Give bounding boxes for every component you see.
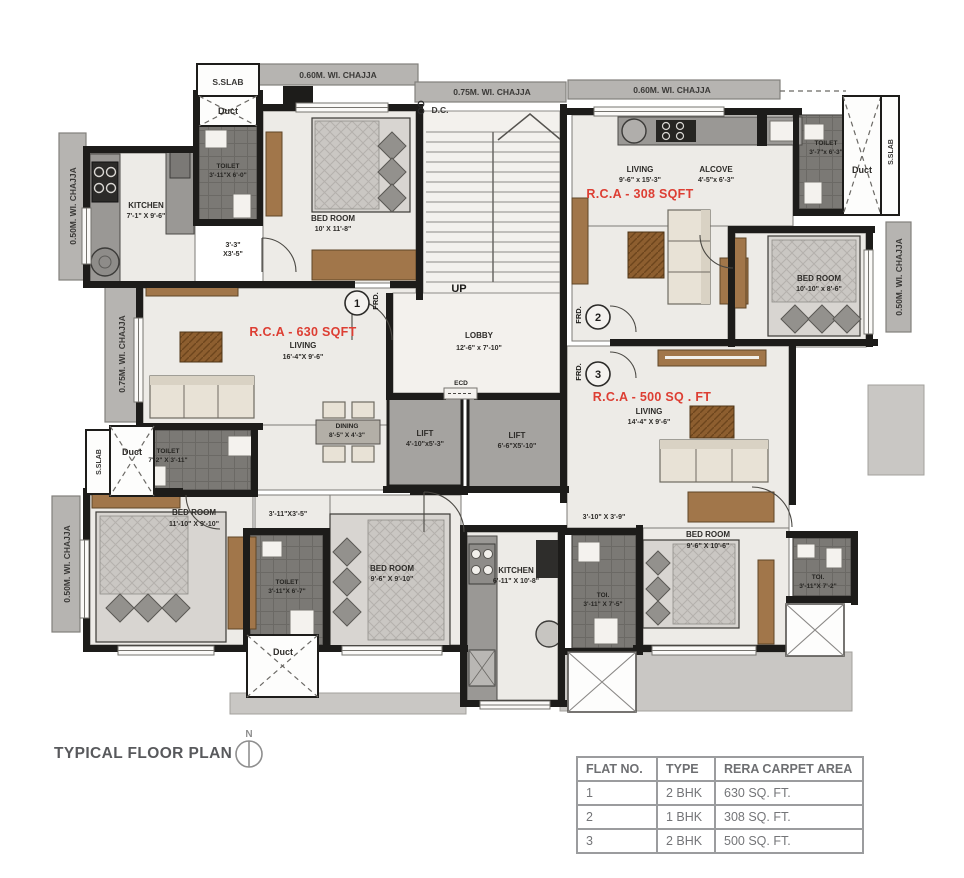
washbasin — [804, 124, 824, 140]
chajja-label-right: 0.50M. WI. CHAJJA — [894, 238, 904, 315]
dining-chair — [352, 402, 374, 418]
living1-dims: 16'-4"X 9'-6" — [283, 354, 324, 361]
dining-chair — [323, 402, 345, 418]
frd2-label: FRD. — [574, 306, 583, 324]
table-header-row: FLAT NO. TYPE RERA CARPET AREA — [577, 757, 863, 781]
passage2-dims: 3'-11"X3'-5" — [269, 511, 307, 518]
toilet1-dims: 3'-11"X 6'-0" — [209, 172, 246, 179]
toilet3-name: TOILET — [276, 579, 299, 586]
north-symbol: N — [236, 729, 262, 767]
floor-plan-page: 0.60M. WI. CHAJJA 0.75M. WI. CHAJJA 0.60… — [0, 0, 964, 878]
cabinet — [572, 198, 588, 284]
lift2-dims: 6'-6"X5'-10" — [498, 443, 537, 450]
wardrobe — [266, 132, 282, 216]
alcove-dims: 4'-5"x 6'-3" — [698, 177, 734, 184]
wc — [804, 182, 822, 204]
washbasin — [205, 130, 227, 148]
chajja-label-left-top: 0.50M. WI. CHAJJA — [68, 167, 78, 244]
duct-label-right: Duct — [852, 165, 872, 175]
dining-chair — [352, 446, 374, 462]
living3-name: LIVING — [636, 407, 663, 416]
stove — [656, 120, 696, 142]
living2-dims: 9'-6" x 15'-3" — [619, 177, 661, 184]
frd1-label: FRD. — [371, 292, 380, 310]
frd3-number: 3 — [595, 369, 601, 381]
toi2-name: TOI. — [812, 574, 825, 581]
lobby-floor — [393, 293, 560, 393]
lift2-name: LIFT — [509, 431, 526, 440]
living1-name: LIVING — [290, 341, 317, 350]
bedroom1-name: BED ROOM — [311, 214, 355, 223]
bedroom3-name: BED ROOM — [370, 564, 414, 573]
toi2-dims: 3'-11"X 7'-2" — [799, 583, 836, 590]
wardrobe — [228, 537, 256, 629]
dresser — [312, 250, 416, 280]
cell-type: 2 BHK — [657, 781, 715, 805]
cell-type: 1 BHK — [657, 805, 715, 829]
living2-name: LIVING — [627, 165, 654, 174]
bedroom1-dims: 10' X 11'-8" — [315, 226, 352, 233]
duct-label-left: Duct — [122, 447, 142, 457]
lift1-dims: 4'-10"x5'-3" — [406, 441, 444, 448]
bedroom4-name: BED ROOM — [797, 274, 841, 283]
cabinet — [758, 560, 774, 644]
bedroom2-dims: 11'-10" X 9'-10" — [169, 521, 219, 528]
frd2-number: 2 — [595, 312, 601, 324]
frd3-label: FRD. — [574, 363, 583, 381]
lobby-dims: 12'-6" x 7'-10" — [456, 345, 502, 352]
table-row: 1 2 BHK 630 SQ. FT. — [577, 781, 863, 805]
north-letter: N — [245, 729, 252, 740]
sslab-label-right: S.SLAB — [888, 139, 895, 165]
cell-flat-no: 1 — [577, 781, 657, 805]
cylinder — [91, 248, 119, 276]
page-title: TYPICAL FLOOR PLAN — [54, 745, 232, 763]
toilet2-name: TOILET — [157, 448, 180, 455]
wc — [233, 194, 251, 218]
bedroom3-dims: 9'-6" X 9'-10" — [371, 576, 414, 583]
stove — [469, 544, 495, 584]
sslab-label-left: S.SLAB — [96, 449, 103, 475]
wc — [290, 610, 314, 638]
coffee-table — [180, 332, 222, 362]
table-row: 2 1 BHK 308 SQ. FT. — [577, 805, 863, 829]
cell-flat-no: 2 — [577, 805, 657, 829]
cell-area: 308 SQ. FT. — [715, 805, 863, 829]
wc — [594, 618, 618, 644]
toilet3-dims: 3'-11"X 6'-7" — [268, 588, 305, 595]
toilet1-name: TOILET — [217, 163, 240, 170]
dc-label: D.C. — [432, 105, 449, 115]
coffee-table — [628, 232, 664, 278]
toilet4-name: TOILET — [815, 140, 838, 147]
cylinder — [622, 119, 646, 143]
header-rera-area: RERA CARPET AREA — [715, 757, 863, 781]
flat1-rca: R.C.A - 630 SQFT — [249, 325, 356, 339]
table-row: 3 2 BHK 500 SQ. FT. — [577, 829, 863, 853]
frd1-number: 1 — [354, 298, 360, 310]
toi1-name: TOI. — [597, 592, 610, 599]
bedroom4-dims: 10'-10" x 8'-6" — [796, 286, 842, 293]
passage1-dims-1: 3'-3" — [225, 242, 240, 249]
wardrobe — [688, 492, 774, 522]
cell-type: 2 BHK — [657, 829, 715, 853]
flat-summary-table: FLAT NO. TYPE RERA CARPET AREA 1 2 BHK 6… — [576, 756, 864, 854]
cell-area: 500 SQ. FT. — [715, 829, 863, 853]
lobby-name: LOBBY — [465, 331, 494, 340]
chajja-label-top-3: 0.60M. WI. CHAJJA — [633, 85, 710, 95]
chajja-label-left-bottom: 0.50M. WI. CHAJJA — [62, 525, 72, 602]
passage3-dims: 3'-10" X 3'-9" — [583, 514, 626, 521]
header-type: TYPE — [657, 757, 715, 781]
washbasin — [262, 541, 282, 557]
bedroom5-name: BED ROOM — [686, 530, 730, 539]
kitchen2-dims: 6'-11" X 10'-8" — [493, 578, 539, 585]
coffee-table — [690, 406, 734, 438]
header-flat-no: FLAT NO. — [577, 757, 657, 781]
sink — [770, 121, 794, 141]
sslab-label-top-left: S.SLAB — [212, 77, 243, 87]
staircase-floor — [423, 111, 560, 298]
washbasin — [797, 544, 815, 558]
kitchen1-name: KITCHEN — [128, 201, 164, 210]
kitchen2-name: KITCHEN — [498, 566, 534, 575]
flat3-rca: R.C.A - 500 SQ . FT — [593, 390, 712, 404]
bedroom5-dims: 9'-6" X 10'-6" — [687, 543, 730, 550]
dining1-dims: 8'-5" X 4'-3" — [329, 432, 365, 439]
toilet4-dims: 3'-7"x 6'-3" — [809, 149, 842, 156]
alcove-name: ALCOVE — [699, 165, 733, 174]
washbasin — [578, 542, 600, 562]
chajja-label-top-1: 0.60M. WI. CHAJJA — [299, 70, 376, 80]
dining1-name: DINING — [336, 423, 359, 430]
ecd-label: ECD — [454, 380, 468, 387]
up-label: UP — [451, 283, 466, 295]
living3-dims: 14'-4" X 9'-6" — [628, 419, 671, 426]
toi1-dims: 3'-11" X 7'-5" — [583, 601, 622, 608]
bedroom2-name: BED ROOM — [172, 508, 216, 517]
chajja-label-left-mid: 0.75M. WI. CHAJJA — [117, 315, 127, 392]
lift1-name: LIFT — [417, 429, 434, 438]
toilet2-dims: 7'-2" X 3'-11" — [148, 457, 187, 464]
passage1-dims-2: X3'-5" — [223, 251, 243, 258]
kitchen1-dims: 7'-1" X 9'-6" — [127, 213, 166, 220]
flat2-rca: R.C.A - 308 SQFT — [586, 187, 693, 201]
dining-chair — [323, 446, 345, 462]
cell-flat-no: 3 — [577, 829, 657, 853]
duct-label-top-left: Duct — [218, 106, 238, 116]
washbasin — [228, 436, 252, 456]
wc — [826, 548, 842, 568]
sink — [170, 152, 190, 178]
duct-label-bottom: Duct — [273, 647, 293, 657]
chajja-label-top-2: 0.75M. WI. CHAJJA — [453, 87, 530, 97]
cell-area: 630 SQ. FT. — [715, 781, 863, 805]
